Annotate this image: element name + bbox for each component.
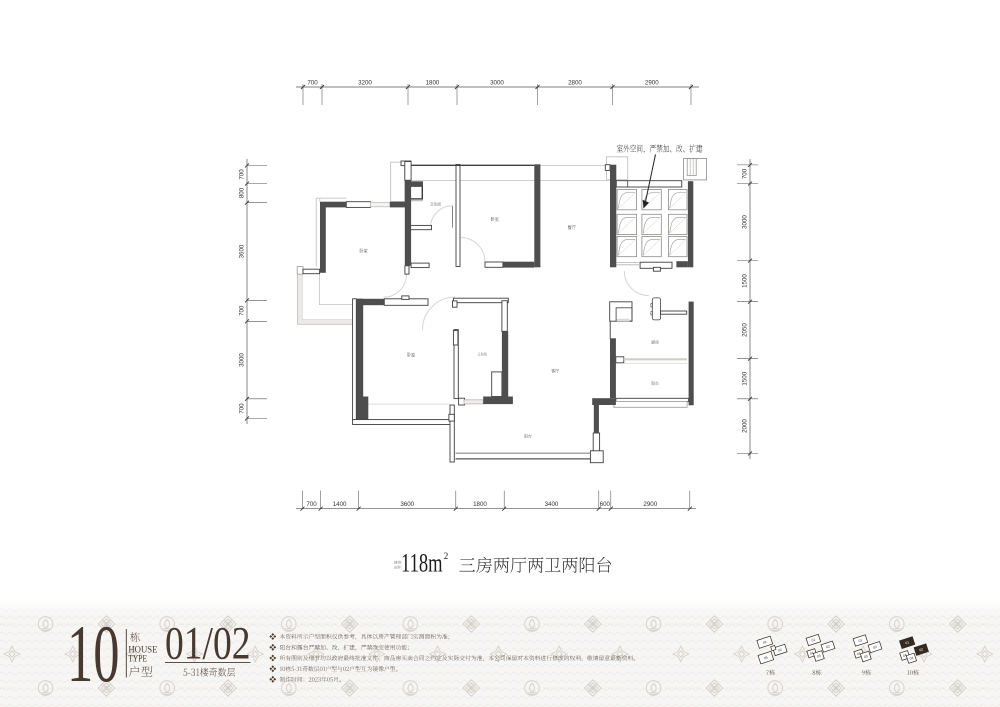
svg-text:700: 700	[742, 168, 749, 179]
svg-text:3000: 3000	[742, 215, 749, 229]
svg-text:3600: 3600	[400, 501, 414, 508]
svg-text:700: 700	[239, 305, 246, 316]
svg-text:TYPE: TYPE	[128, 654, 147, 664]
svg-text:1800: 1800	[473, 501, 487, 508]
svg-text:700: 700	[239, 403, 246, 414]
svg-text:1500: 1500	[742, 371, 749, 385]
svg-text:1800: 1800	[426, 79, 440, 86]
svg-text:2900: 2900	[645, 79, 659, 86]
svg-text:1400: 1400	[333, 501, 347, 508]
svg-text:700: 700	[239, 169, 246, 180]
svg-text:3400: 3400	[545, 501, 559, 508]
svg-text:3600: 3600	[239, 244, 246, 258]
svg-text:3200: 3200	[358, 79, 372, 86]
svg-text:600: 600	[600, 501, 611, 508]
svg-text:2000: 2000	[742, 419, 749, 433]
svg-text:700: 700	[307, 79, 318, 86]
svg-text:1500: 1500	[742, 274, 749, 288]
svg-text:10: 10	[67, 608, 120, 699]
svg-text:2900: 2900	[643, 501, 657, 508]
svg-text:3000: 3000	[490, 79, 504, 86]
svg-text:01/02: 01/02	[165, 618, 251, 670]
svg-text:118m: 118m	[401, 549, 443, 578]
svg-text:2050: 2050	[742, 323, 749, 337]
svg-text:3000: 3000	[239, 353, 246, 367]
svg-text:800: 800	[239, 187, 246, 198]
svg-text:2: 2	[444, 551, 449, 561]
svg-text:700: 700	[306, 501, 317, 508]
svg-text:2800: 2800	[568, 79, 582, 86]
